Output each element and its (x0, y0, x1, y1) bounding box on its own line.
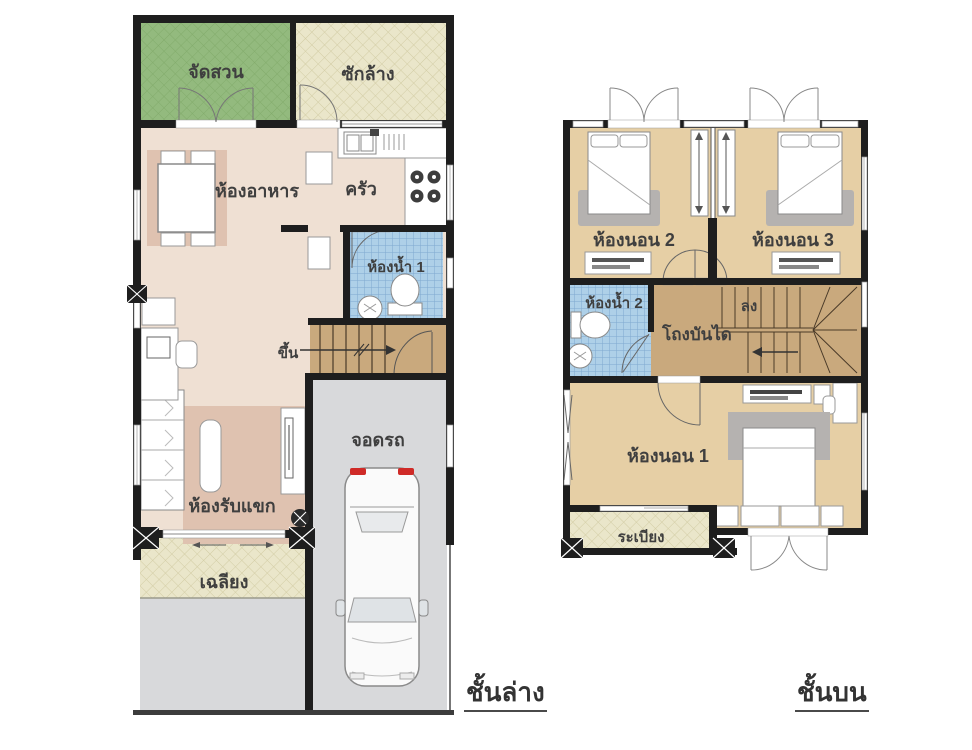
dresser-bedroom3 (772, 252, 840, 274)
label-bedroom2: ห้องนอน 2 (593, 230, 675, 250)
tail-light-left (350, 468, 366, 475)
sofa (141, 390, 184, 510)
nightstand-right (821, 506, 843, 526)
upper-floor-plan: ห้องนอน 2 ห้องนอน 3 ห้องน้ำ 2 โถงบันได ล… (561, 88, 868, 570)
ground-floor-caption: ชั้นล่าง (464, 678, 547, 712)
wardrobe-bedroom3 (718, 130, 735, 216)
label-bathroom1: ห้องน้ำ 1 (367, 255, 424, 276)
floor-plan-canvas: จัดสวน ซักล้าง ห้องอาหาร ครัว ห้องน้ำ 1 … (0, 0, 972, 750)
bed3 (766, 132, 854, 226)
ground-stairs (300, 325, 447, 375)
sink1-icon (358, 296, 382, 320)
nightstand-left (716, 506, 738, 526)
bedroom3-balcony-door (748, 88, 820, 128)
mirror-left (336, 600, 345, 616)
label-bedroom3: ห้องนอน 3 (752, 230, 834, 250)
tail-light-right (398, 468, 414, 475)
dresser-bedroom2 (585, 252, 651, 274)
dining-table (158, 164, 215, 232)
sink2-icon (568, 344, 592, 368)
hall-cabinet-2 (308, 237, 330, 269)
label-balcony: ระเบียง (618, 529, 665, 546)
windshield (348, 598, 416, 622)
coffee-table (200, 420, 221, 492)
tv-cabinet (281, 408, 305, 494)
wardrobe-bedroom2 (691, 130, 708, 216)
label-stairs-down: ลง (741, 298, 758, 315)
ground-floor-plan: จัดสวน ซักล้าง ห้องอาหาร ครัว ห้องน้ำ 1 … (127, 15, 454, 715)
label-stair-hall: โถงบันได (661, 324, 732, 344)
floor-plan-page: จัดสวน ซักล้าง ห้องอาหาร ครัว ห้องน้ำ 1 … (0, 0, 972, 750)
label-porch: เฉลียง (200, 572, 249, 592)
desk-chair (176, 341, 197, 368)
label-dining: ห้องอาหาร (215, 181, 299, 201)
label-stairs-up: ขึ้น (278, 341, 299, 362)
hall-cabinet (306, 152, 332, 184)
bedroom1-terrace-door (748, 528, 828, 570)
kitchen-window (342, 121, 442, 127)
label-living: ห้องรับแขก (188, 496, 275, 516)
driveway-floor (140, 598, 307, 711)
label-carport: จอดรถ (351, 430, 405, 450)
rear-window (356, 512, 408, 532)
bedroom1-console (743, 385, 830, 404)
bed2 (578, 132, 660, 226)
label-garden: จัดสวน (188, 62, 244, 82)
label-bedroom1: ห้องนอน 1 (627, 446, 709, 466)
bedroom-divider-wall (711, 128, 715, 218)
toilet2-icon (571, 312, 610, 338)
label-laundry: ซักล้าง (341, 64, 394, 84)
label-bathroom2: ห้องน้ำ 2 (585, 291, 642, 312)
label-kitchen: ครัว (345, 179, 377, 199)
car-top-view (336, 468, 428, 686)
upper-floor-caption: ชั้นบน (795, 678, 869, 712)
bedroom2-balcony-door (608, 88, 680, 128)
mirror-right (419, 600, 428, 616)
